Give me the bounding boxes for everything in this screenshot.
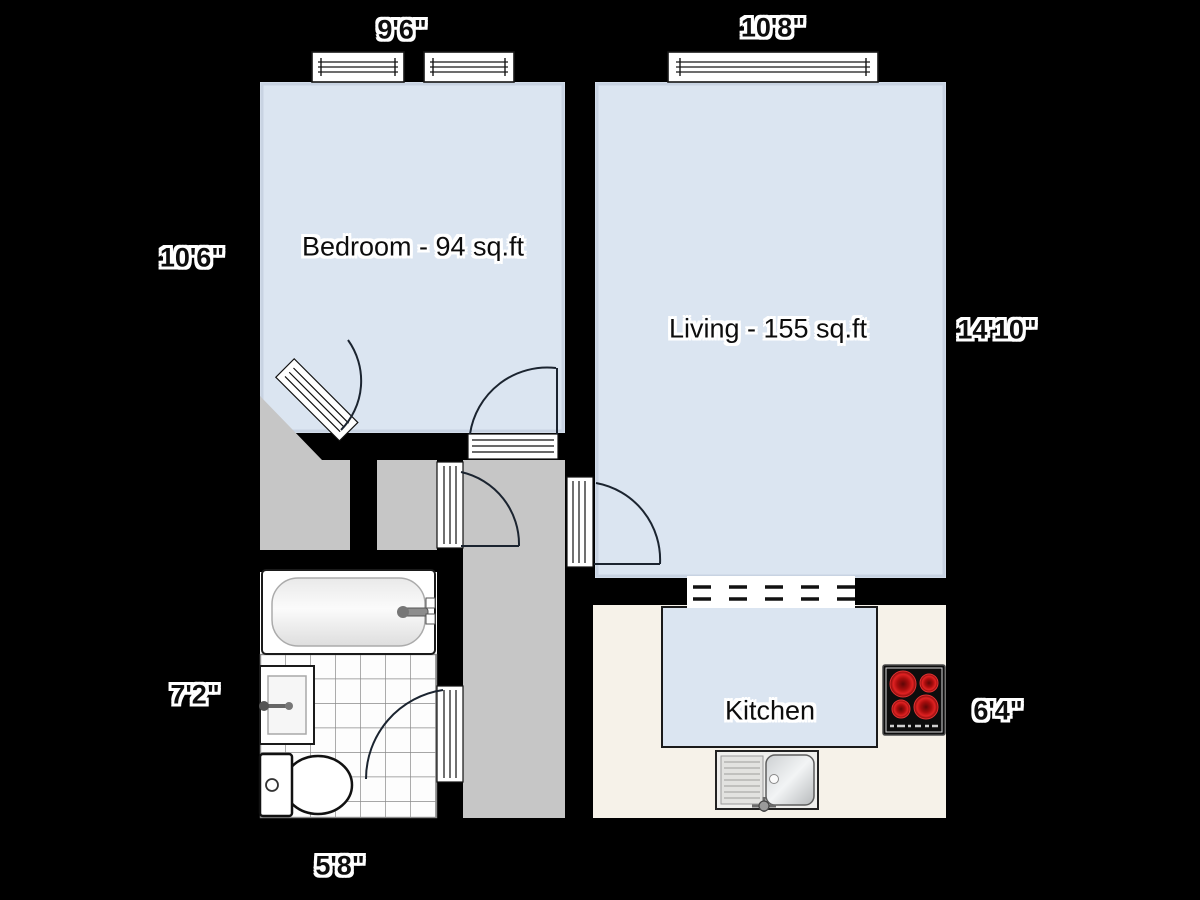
bedroom-label: Bedroom - 94 sq.ft (302, 232, 524, 263)
bedroom-window-1 (312, 52, 404, 82)
bathroom-sink (259, 666, 314, 744)
living-label: Living - 155 sq.ft (669, 314, 867, 345)
hallway-niche-floor (377, 460, 437, 550)
living-window (668, 52, 878, 82)
dim-living-height: 14'10" (957, 315, 1036, 346)
dim-bedroom-height: 10'6" (160, 243, 224, 274)
toilet (260, 754, 352, 816)
kitchen-sink (716, 751, 818, 812)
kitchen-label: Kitchen (725, 696, 815, 727)
floorplan-svg (0, 0, 1200, 900)
bedroom-window-2 (424, 52, 514, 82)
floorplan-canvas: Bedroom - 94 sq.ft Living - 155 sq.ft Ki… (0, 0, 1200, 900)
stove (883, 665, 945, 735)
dim-living-width: 10'8" (741, 13, 805, 44)
living-kitchen-opening (687, 576, 855, 608)
dim-bathroom-height: 7'2" (170, 680, 219, 711)
corridor-floor (463, 460, 565, 818)
dim-bedroom-width: 9'6" (377, 15, 426, 46)
bathtub (262, 570, 435, 654)
dim-kitchen-height: 6'4" (973, 696, 1022, 727)
dim-bathroom-width: 5'8" (315, 851, 364, 882)
